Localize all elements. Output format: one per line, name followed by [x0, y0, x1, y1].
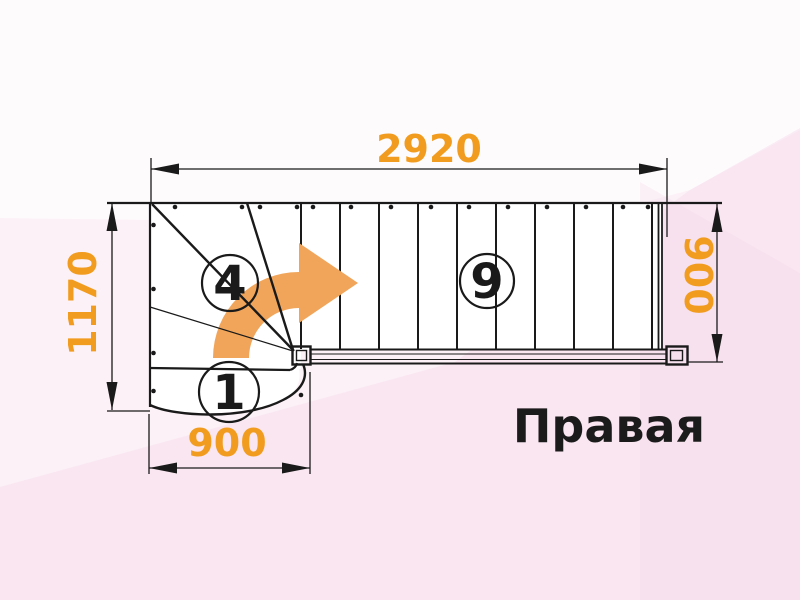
dimension-right-value: 900: [676, 235, 720, 314]
staircase-plan-drawing: 2920 1170 900 900: [0, 0, 800, 600]
dimension-bottom-value: 900: [187, 421, 266, 465]
dimension-left-value: 1170: [61, 250, 105, 356]
dimension-left: 1170: [61, 203, 150, 411]
newel-post-right: [667, 347, 688, 365]
dimension-top-value: 2920: [376, 127, 482, 171]
staircase-plan-canvas: 2920 1170 900 900: [0, 0, 800, 600]
step-4-label: 4: [213, 256, 246, 312]
step-9-label: 9: [470, 254, 503, 310]
flight-handrail: [311, 350, 667, 364]
dimension-right: 900: [676, 204, 723, 362]
stair-orientation-title: Правая: [513, 399, 705, 453]
